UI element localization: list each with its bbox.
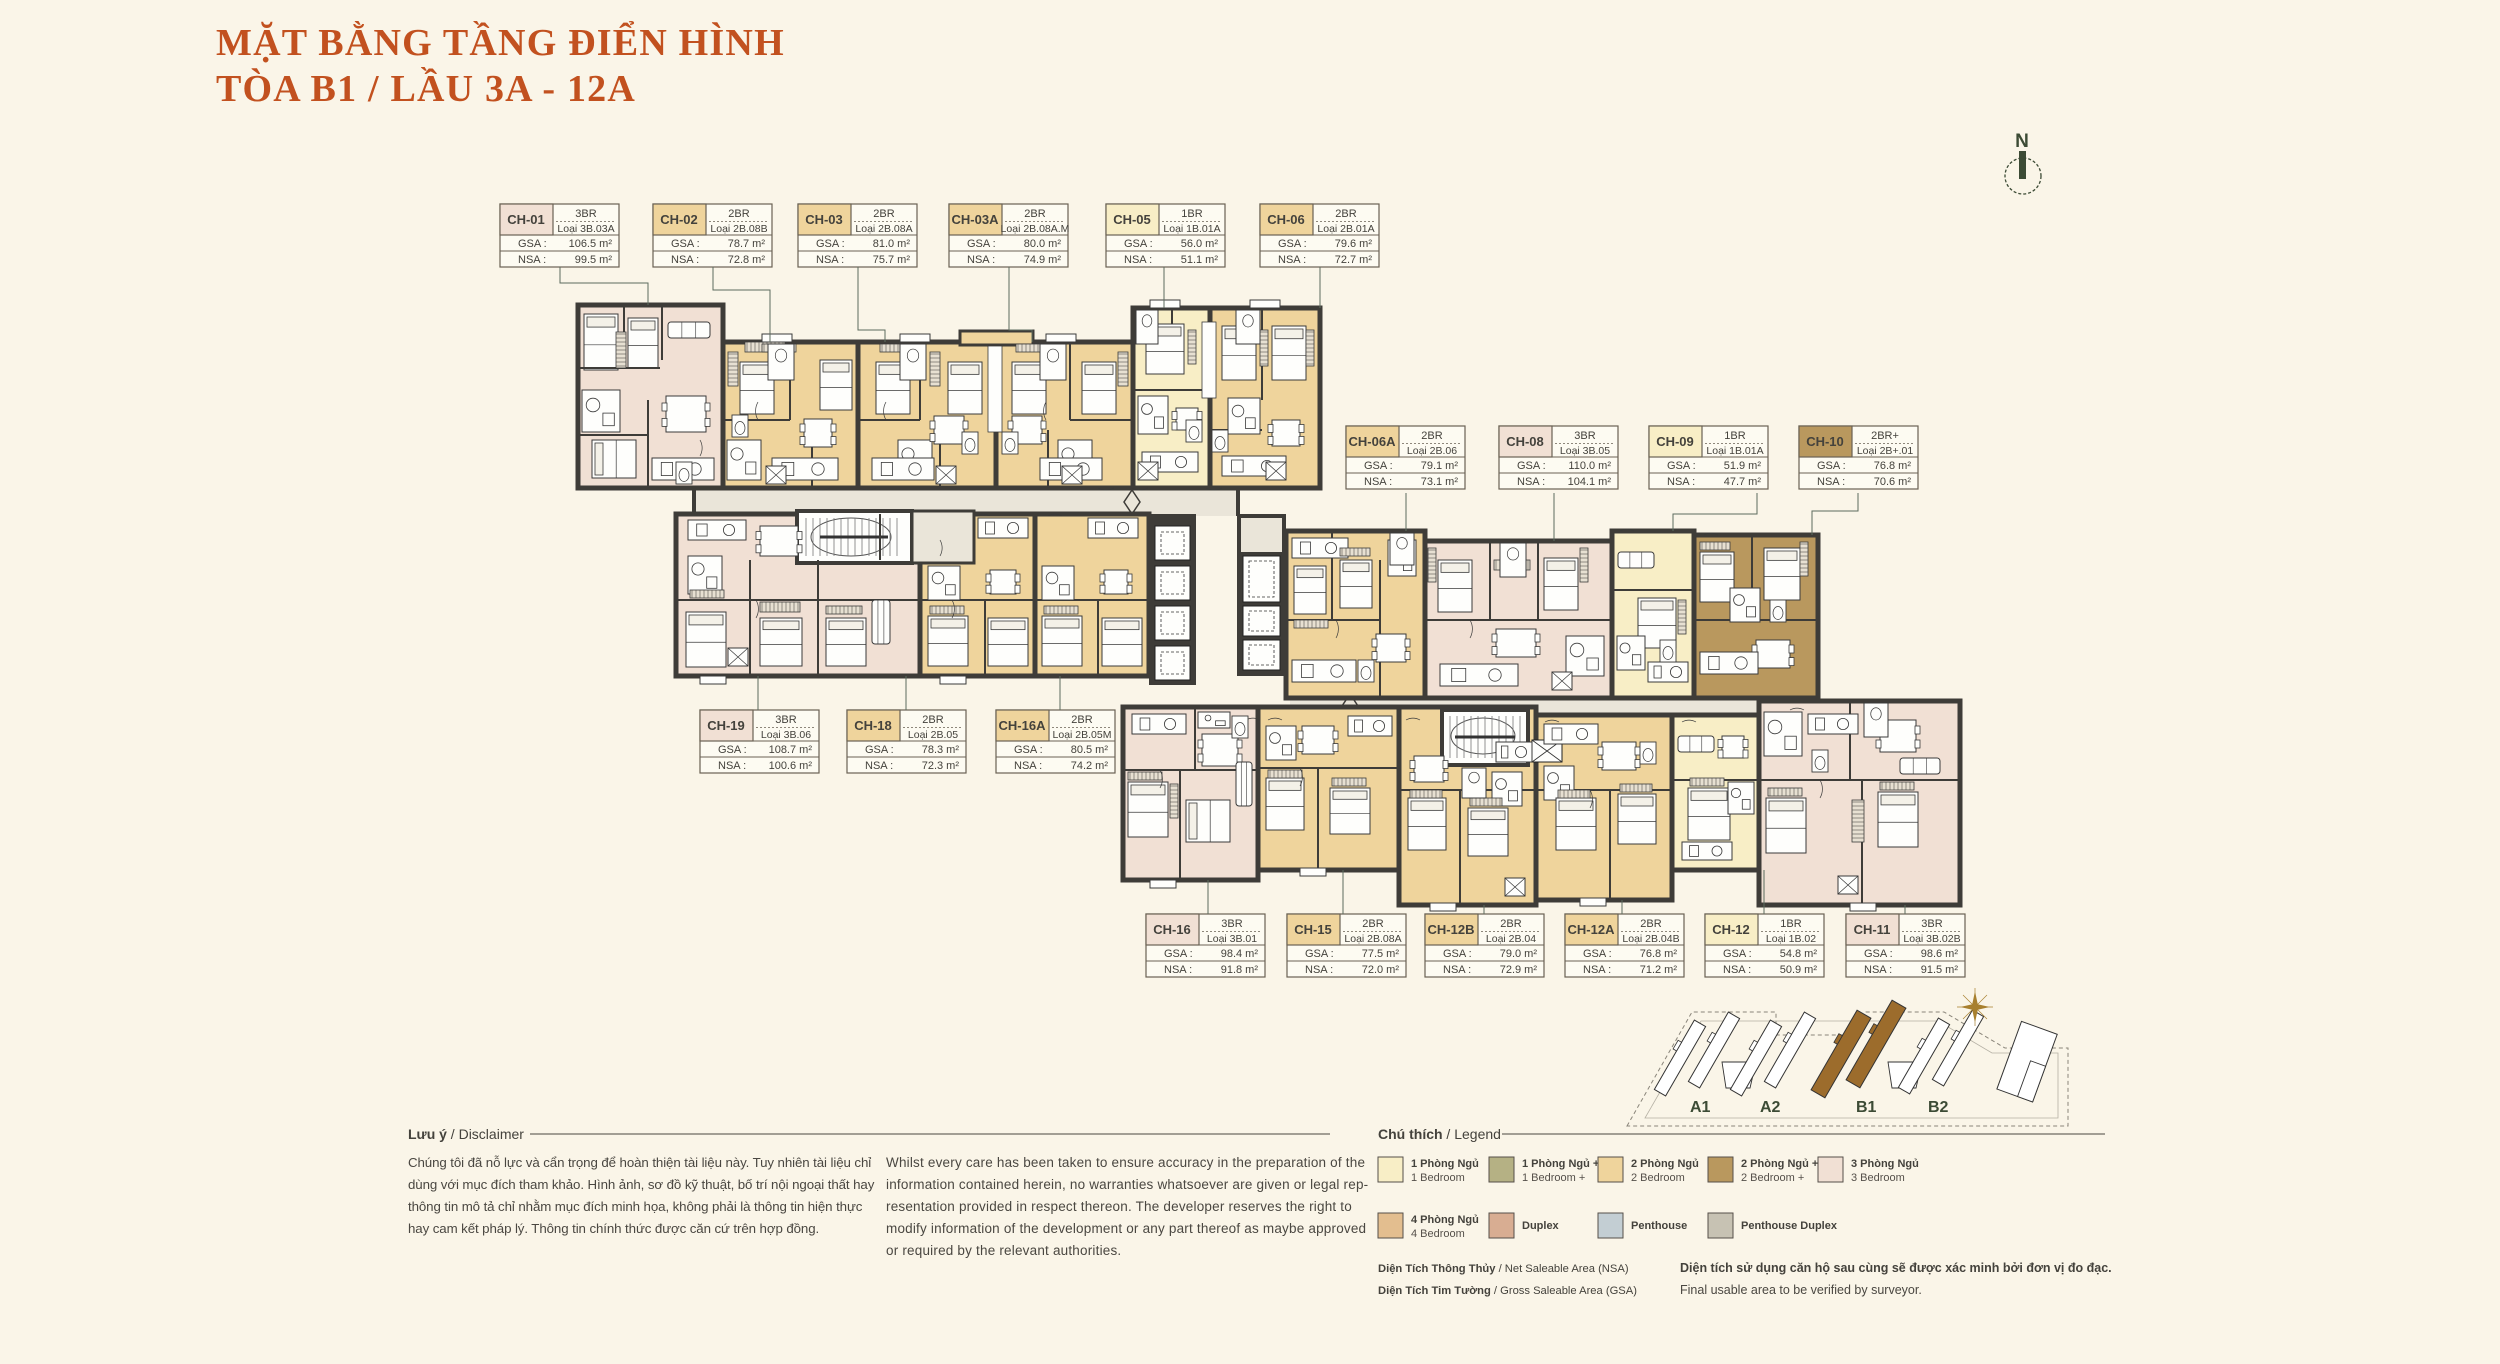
svg-text:NSA :: NSA : bbox=[1667, 476, 1695, 488]
svg-text:73.1 m²: 73.1 m² bbox=[1421, 476, 1459, 488]
svg-text:3BR: 3BR bbox=[1921, 918, 1942, 930]
svg-text:GSA :: GSA : bbox=[1305, 948, 1334, 960]
svg-text:NSA :: NSA : bbox=[865, 760, 893, 772]
svg-text:GSA :: GSA : bbox=[865, 744, 894, 756]
svg-text:GSA :: GSA : bbox=[1443, 948, 1472, 960]
svg-text:dùng với mục đích tham khảo. H: dùng với mục đích tham khảo. Hình ảnh, s… bbox=[408, 1177, 875, 1192]
svg-text:B2: B2 bbox=[1928, 1099, 1949, 1116]
svg-text:CH-12A: CH-12A bbox=[1568, 922, 1616, 937]
svg-text:CH-06A: CH-06A bbox=[1349, 434, 1397, 449]
svg-text:CH-08: CH-08 bbox=[1506, 434, 1544, 449]
svg-text:GSA :: GSA : bbox=[1817, 460, 1846, 472]
svg-text:2BR+: 2BR+ bbox=[1871, 430, 1899, 442]
svg-text:2 Bedroom: 2 Bedroom bbox=[1631, 1172, 1685, 1184]
svg-text:106.5 m²: 106.5 m² bbox=[569, 238, 613, 250]
svg-text:CH-05: CH-05 bbox=[1113, 212, 1151, 227]
svg-text:CH-12: CH-12 bbox=[1712, 922, 1750, 937]
svg-text:2 Phòng Ngủ: 2 Phòng Ngủ bbox=[1631, 1158, 1699, 1170]
svg-text:Loại 2B+.01: Loại 2B+.01 bbox=[1857, 445, 1914, 457]
svg-text:Diện Tích Thông Thủy / Net Sal: Diện Tích Thông Thủy / Net Saleable Area… bbox=[1378, 1263, 1629, 1275]
svg-text:NSA :: NSA : bbox=[1517, 476, 1545, 488]
svg-text:2BR: 2BR bbox=[922, 714, 943, 726]
svg-text:NSA :: NSA : bbox=[1124, 254, 1152, 266]
svg-text:NSA :: NSA : bbox=[1164, 964, 1192, 976]
svg-text:1BR: 1BR bbox=[1724, 430, 1745, 442]
svg-text:99.5 m²: 99.5 m² bbox=[575, 254, 613, 266]
svg-text:CH-16: CH-16 bbox=[1153, 922, 1191, 937]
svg-text:Penthouse: Penthouse bbox=[1631, 1220, 1687, 1232]
svg-text:2BR: 2BR bbox=[1071, 714, 1092, 726]
svg-text:2BR: 2BR bbox=[1362, 918, 1383, 930]
svg-text:CH-01: CH-01 bbox=[507, 212, 545, 227]
svg-text:2BR: 2BR bbox=[1335, 208, 1356, 220]
svg-text:98.6 m²: 98.6 m² bbox=[1921, 948, 1959, 960]
svg-text:resentation provided in respec: resentation provided in respect thereon.… bbox=[886, 1199, 1352, 1214]
svg-text:NSA :: NSA : bbox=[718, 760, 746, 772]
svg-text:GSA :: GSA : bbox=[1014, 744, 1043, 756]
svg-text:76.8 m²: 76.8 m² bbox=[1640, 948, 1678, 960]
svg-text:Loại 1B.02: Loại 1B.02 bbox=[1766, 933, 1816, 945]
svg-text:GSA :: GSA : bbox=[1864, 948, 1893, 960]
svg-text:NSA :: NSA : bbox=[518, 254, 546, 266]
svg-text:3 Phòng Ngủ: 3 Phòng Ngủ bbox=[1851, 1158, 1919, 1170]
svg-text:91.5 m²: 91.5 m² bbox=[1921, 964, 1959, 976]
svg-text:79.0 m²: 79.0 m² bbox=[1500, 948, 1538, 960]
svg-text:A2: A2 bbox=[1760, 1099, 1781, 1116]
svg-text:CH-03: CH-03 bbox=[805, 212, 843, 227]
svg-text:74.9 m²: 74.9 m² bbox=[1024, 254, 1062, 266]
svg-text:hay cam kết pháp lý. Thông tin: hay cam kết pháp lý. Thông tin chính thứ… bbox=[408, 1221, 819, 1236]
svg-text:54.8 m²: 54.8 m² bbox=[1780, 948, 1818, 960]
svg-text:GSA :: GSA : bbox=[1124, 238, 1153, 250]
svg-text:Chúng tôi đã nỗ lực và cẩn trọ: Chúng tôi đã nỗ lực và cẩn trọng để hoàn… bbox=[408, 1155, 871, 1170]
svg-text:1 Bedroom: 1 Bedroom bbox=[1411, 1172, 1465, 1184]
svg-text:Duplex: Duplex bbox=[1522, 1220, 1560, 1232]
svg-text:NSA :: NSA : bbox=[671, 254, 699, 266]
svg-text:47.7 m²: 47.7 m² bbox=[1724, 476, 1762, 488]
svg-text:Loại 3B.06: Loại 3B.06 bbox=[761, 729, 811, 741]
svg-text:GSA :: GSA : bbox=[1278, 238, 1307, 250]
svg-text:CH-02: CH-02 bbox=[660, 212, 698, 227]
svg-text:Loại 3B.05: Loại 3B.05 bbox=[1560, 445, 1610, 457]
svg-text:GSA :: GSA : bbox=[718, 744, 747, 756]
svg-text:GSA :: GSA : bbox=[671, 238, 700, 250]
svg-text:information contained herein,: information contained herein, no warrant… bbox=[886, 1177, 1368, 1192]
svg-text:Loại 2B.08B: Loại 2B.08B bbox=[710, 223, 767, 235]
svg-text:50.9 m²: 50.9 m² bbox=[1780, 964, 1818, 976]
svg-text:CH-16A: CH-16A bbox=[999, 718, 1047, 733]
svg-text:CH-06: CH-06 bbox=[1267, 212, 1305, 227]
svg-text:56.0 m²: 56.0 m² bbox=[1181, 238, 1219, 250]
svg-text:75.7 m²: 75.7 m² bbox=[873, 254, 911, 266]
svg-text:Loại 3B.02B: Loại 3B.02B bbox=[1903, 933, 1960, 945]
svg-text:CH-03A: CH-03A bbox=[952, 212, 1000, 227]
svg-text:GSA :: GSA : bbox=[816, 238, 845, 250]
svg-text:74.2 m²: 74.2 m² bbox=[1071, 760, 1109, 772]
svg-text:4 Phòng Ngủ: 4 Phòng Ngủ bbox=[1411, 1214, 1479, 1226]
svg-text:79.6 m²: 79.6 m² bbox=[1335, 238, 1373, 250]
svg-text:3BR: 3BR bbox=[775, 714, 796, 726]
svg-text:1BR: 1BR bbox=[1181, 208, 1202, 220]
svg-text:GSA :: GSA : bbox=[1164, 948, 1193, 960]
svg-text:72.7 m²: 72.7 m² bbox=[1335, 254, 1373, 266]
svg-text:81.0 m²: 81.0 m² bbox=[873, 238, 911, 250]
svg-text:2BR: 2BR bbox=[1421, 430, 1442, 442]
svg-text:or required by the relevant au: or required by the relevant authorities. bbox=[886, 1243, 1121, 1258]
svg-text:modify information of the deve: modify information of the development or… bbox=[886, 1221, 1366, 1236]
svg-text:CH-10: CH-10 bbox=[1806, 434, 1844, 449]
svg-text:1BR: 1BR bbox=[1780, 918, 1801, 930]
svg-text:CH-09: CH-09 bbox=[1656, 434, 1694, 449]
svg-text:Loại 2B.06: Loại 2B.06 bbox=[1407, 445, 1457, 457]
svg-text:GSA :: GSA : bbox=[518, 238, 547, 250]
svg-text:72.0 m²: 72.0 m² bbox=[1362, 964, 1400, 976]
svg-text:GSA :: GSA : bbox=[967, 238, 996, 250]
svg-text:3BR: 3BR bbox=[1574, 430, 1595, 442]
svg-text:B1: B1 bbox=[1856, 1099, 1877, 1116]
svg-text:NSA :: NSA : bbox=[1443, 964, 1471, 976]
svg-text:NSA :: NSA : bbox=[1364, 476, 1392, 488]
svg-text:NSA :: NSA : bbox=[1583, 964, 1611, 976]
svg-text:CH-18: CH-18 bbox=[854, 718, 892, 733]
svg-text:Chú thích / Legend: Chú thích / Legend bbox=[1378, 1126, 1501, 1142]
svg-text:Loại 2B.05M: Loại 2B.05M bbox=[1053, 729, 1112, 741]
svg-text:NSA :: NSA : bbox=[1014, 760, 1042, 772]
svg-text:Loại 2B.08A: Loại 2B.08A bbox=[1344, 933, 1401, 945]
svg-text:NSA :: NSA : bbox=[1278, 254, 1306, 266]
svg-text:3BR: 3BR bbox=[1221, 918, 1242, 930]
svg-text:2BR: 2BR bbox=[1024, 208, 1045, 220]
svg-text:Loại 2B.05: Loại 2B.05 bbox=[908, 729, 958, 741]
svg-text:CH-11: CH-11 bbox=[1854, 922, 1891, 937]
svg-text:1 Bedroom +: 1 Bedroom + bbox=[1522, 1172, 1585, 1184]
svg-text:Loại 3B.01: Loại 3B.01 bbox=[1207, 933, 1257, 945]
svg-text:1 Phòng Ngủ: 1 Phòng Ngủ bbox=[1411, 1158, 1479, 1170]
svg-text:TÒA B1 / LẦU 3A - 12A: TÒA B1 / LẦU 3A - 12A bbox=[216, 67, 636, 110]
svg-text:91.8 m²: 91.8 m² bbox=[1221, 964, 1259, 976]
svg-text:2BR: 2BR bbox=[873, 208, 894, 220]
svg-text:70.6 m²: 70.6 m² bbox=[1874, 476, 1912, 488]
svg-text:80.5 m²: 80.5 m² bbox=[1071, 744, 1109, 756]
svg-text:72.3 m²: 72.3 m² bbox=[922, 760, 960, 772]
svg-text:110.0 m²: 110.0 m² bbox=[1568, 460, 1611, 472]
svg-text:Whilst every care has been tak: Whilst every care has been taken to ensu… bbox=[886, 1155, 1365, 1170]
svg-text:Final usable area to be verifi: Final usable area to be verified by surv… bbox=[1680, 1283, 1922, 1297]
svg-text:Penthouse Duplex: Penthouse Duplex bbox=[1741, 1220, 1838, 1232]
svg-text:108.7 m²: 108.7 m² bbox=[769, 744, 813, 756]
svg-text:2 Bedroom +: 2 Bedroom + bbox=[1741, 1172, 1804, 1184]
svg-text:Lưu ý / Disclaimer: Lưu ý / Disclaimer bbox=[408, 1126, 524, 1142]
svg-text:78.3 m²: 78.3 m² bbox=[922, 744, 960, 756]
svg-text:51.1 m²: 51.1 m² bbox=[1181, 254, 1219, 266]
svg-text:NSA :: NSA : bbox=[1817, 476, 1845, 488]
svg-text:GSA :: GSA : bbox=[1583, 948, 1612, 960]
svg-text:71.2 m²: 71.2 m² bbox=[1640, 964, 1678, 976]
svg-text:CH-12B: CH-12B bbox=[1428, 922, 1475, 937]
svg-text:N: N bbox=[2015, 131, 2029, 152]
svg-text:Loại 3B.03A: Loại 3B.03A bbox=[557, 223, 614, 235]
svg-text:GSA :: GSA : bbox=[1667, 460, 1696, 472]
svg-text:CH-15: CH-15 bbox=[1294, 922, 1332, 937]
svg-text:2BR: 2BR bbox=[728, 208, 749, 220]
svg-text:Loại 2B.04B: Loại 2B.04B bbox=[1622, 933, 1679, 945]
svg-text:GSA :: GSA : bbox=[1364, 460, 1393, 472]
svg-text:51.9 m²: 51.9 m² bbox=[1724, 460, 1762, 472]
svg-text:NSA :: NSA : bbox=[1305, 964, 1333, 976]
svg-text:Loại 2B.01A: Loại 2B.01A bbox=[1317, 223, 1374, 235]
svg-text:72.9 m²: 72.9 m² bbox=[1500, 964, 1538, 976]
svg-text:79.1 m²: 79.1 m² bbox=[1421, 460, 1459, 472]
svg-text:2 Phòng Ngủ +: 2 Phòng Ngủ + bbox=[1741, 1158, 1818, 1170]
svg-text:80.0 m²: 80.0 m² bbox=[1024, 238, 1062, 250]
svg-text:Diện Tích Tim Tường / Gross Sa: Diện Tích Tim Tường / Gross Saleable Are… bbox=[1378, 1285, 1637, 1297]
svg-text:NSA :: NSA : bbox=[1864, 964, 1892, 976]
svg-text:NSA :: NSA : bbox=[816, 254, 844, 266]
svg-text:NSA :: NSA : bbox=[1723, 964, 1751, 976]
svg-text:Diện tích sử dụng căn hộ sau c: Diện tích sử dụng căn hộ sau cùng sẽ đượ… bbox=[1680, 1261, 2112, 1275]
svg-text:Loại 2B.08A: Loại 2B.08A bbox=[855, 223, 912, 235]
svg-text:Loại 1B.01A: Loại 1B.01A bbox=[1163, 223, 1220, 235]
svg-text:2BR: 2BR bbox=[1640, 918, 1661, 930]
svg-text:Loại 2B.08A.M: Loại 2B.08A.M bbox=[1001, 223, 1070, 235]
svg-text:4 Bedroom: 4 Bedroom bbox=[1411, 1228, 1465, 1240]
svg-text:98.4 m²: 98.4 m² bbox=[1221, 948, 1259, 960]
svg-text:72.8 m²: 72.8 m² bbox=[728, 254, 766, 266]
svg-text:78.7 m²: 78.7 m² bbox=[728, 238, 766, 250]
svg-text:MẶT BẰNG TẦNG ĐIỂN HÌNH: MẶT BẰNG TẦNG ĐIỂN HÌNH bbox=[216, 21, 785, 64]
svg-text:1 Phòng Ngủ +: 1 Phòng Ngủ + bbox=[1522, 1158, 1599, 1170]
svg-text:A1: A1 bbox=[1690, 1099, 1711, 1116]
svg-text:GSA :: GSA : bbox=[1517, 460, 1546, 472]
svg-text:GSA :: GSA : bbox=[1723, 948, 1752, 960]
svg-text:2BR: 2BR bbox=[1500, 918, 1521, 930]
svg-text:100.6 m²: 100.6 m² bbox=[769, 760, 813, 772]
svg-text:104.1 m²: 104.1 m² bbox=[1568, 476, 1612, 488]
svg-text:CH-19: CH-19 bbox=[707, 718, 745, 733]
svg-text:Loại 1B.01A: Loại 1B.01A bbox=[1706, 445, 1763, 457]
svg-text:thông tin mô tả chỉ nhằm mục đ: thông tin mô tả chỉ nhằm mục đích minh h… bbox=[408, 1199, 863, 1214]
svg-text:NSA :: NSA : bbox=[967, 254, 995, 266]
svg-text:76.8 m²: 76.8 m² bbox=[1874, 460, 1912, 472]
svg-text:Loại 2B.04: Loại 2B.04 bbox=[1486, 933, 1536, 945]
svg-text:3 Bedroom: 3 Bedroom bbox=[1851, 1172, 1905, 1184]
svg-text:3BR: 3BR bbox=[575, 208, 596, 220]
svg-text:77.5 m²: 77.5 m² bbox=[1362, 948, 1400, 960]
